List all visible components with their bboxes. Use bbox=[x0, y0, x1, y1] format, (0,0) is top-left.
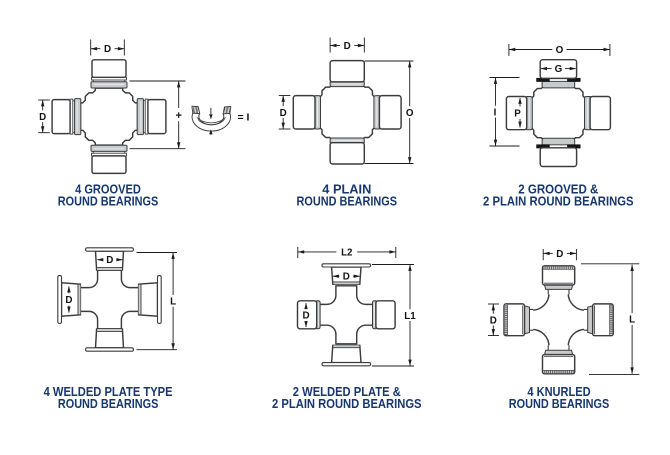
svg-text:L2: L2 bbox=[341, 247, 353, 258]
svg-text:D: D bbox=[343, 272, 350, 283]
svg-text:ROUND BEARINGS: ROUND BEARINGS bbox=[58, 396, 159, 411]
svg-text:ROUND BEARINGS: ROUND BEARINGS bbox=[509, 396, 610, 411]
svg-text:D: D bbox=[344, 41, 351, 52]
svg-text:D: D bbox=[280, 108, 287, 119]
svg-text:O: O bbox=[556, 45, 564, 56]
svg-text:+: + bbox=[175, 110, 181, 122]
svg-text:I: I bbox=[494, 107, 497, 118]
svg-text:G: G bbox=[555, 64, 563, 75]
svg-text:2 PLAIN ROUND BEARINGS: 2 PLAIN ROUND BEARINGS bbox=[272, 396, 422, 411]
svg-text:D: D bbox=[302, 311, 309, 322]
svg-text:ROUND BEARINGS: ROUND BEARINGS bbox=[58, 194, 159, 209]
svg-text:D: D bbox=[104, 44, 111, 55]
svg-text:D: D bbox=[65, 295, 72, 306]
svg-text:D: D bbox=[106, 255, 113, 266]
svg-text:2 PLAIN ROUND BEARINGS: 2 PLAIN ROUND BEARINGS bbox=[483, 194, 634, 209]
svg-text:ROUND BEARINGS: ROUND BEARINGS bbox=[297, 194, 398, 209]
svg-text:P: P bbox=[514, 108, 521, 119]
svg-text:O: O bbox=[406, 108, 414, 119]
svg-text:= I: = I bbox=[238, 111, 250, 123]
svg-text:L: L bbox=[170, 297, 176, 308]
svg-text:D: D bbox=[556, 249, 563, 260]
svg-text:D: D bbox=[39, 112, 46, 123]
svg-text:D: D bbox=[490, 315, 497, 326]
svg-text:L: L bbox=[629, 315, 635, 326]
svg-text:L1: L1 bbox=[404, 311, 416, 322]
